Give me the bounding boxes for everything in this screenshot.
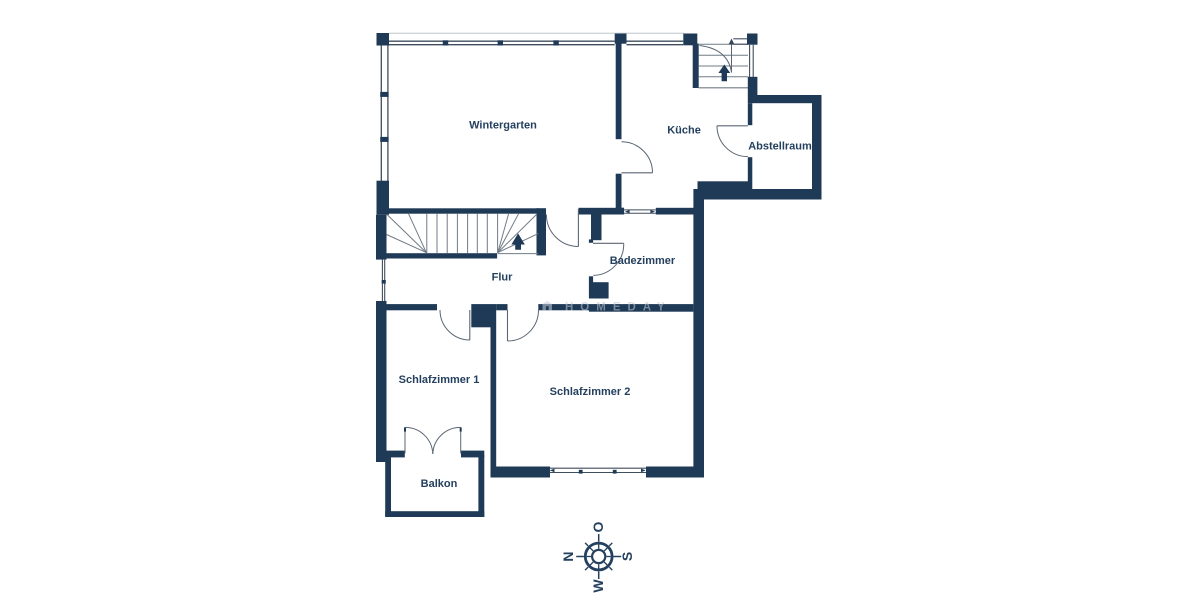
svg-text:Balkon: Balkon bbox=[421, 478, 458, 490]
svg-text:Abstellraum: Abstellraum bbox=[748, 141, 812, 153]
svg-text:Badezimmer: Badezimmer bbox=[610, 255, 676, 267]
svg-text:S: S bbox=[619, 552, 635, 561]
svg-text:Schlafzimmer 1: Schlafzimmer 1 bbox=[399, 374, 480, 386]
svg-text:Küche: Küche bbox=[667, 125, 701, 137]
svg-text:Schlafzimmer 2: Schlafzimmer 2 bbox=[550, 386, 631, 398]
svg-text:HOMEDAY: HOMEDAY bbox=[565, 301, 672, 313]
svg-text:W: W bbox=[590, 579, 606, 593]
svg-text:O: O bbox=[590, 521, 606, 532]
svg-text:Flur: Flur bbox=[492, 272, 513, 284]
svg-text:Wintergarten: Wintergarten bbox=[469, 120, 537, 132]
svg-text:N: N bbox=[560, 551, 576, 561]
